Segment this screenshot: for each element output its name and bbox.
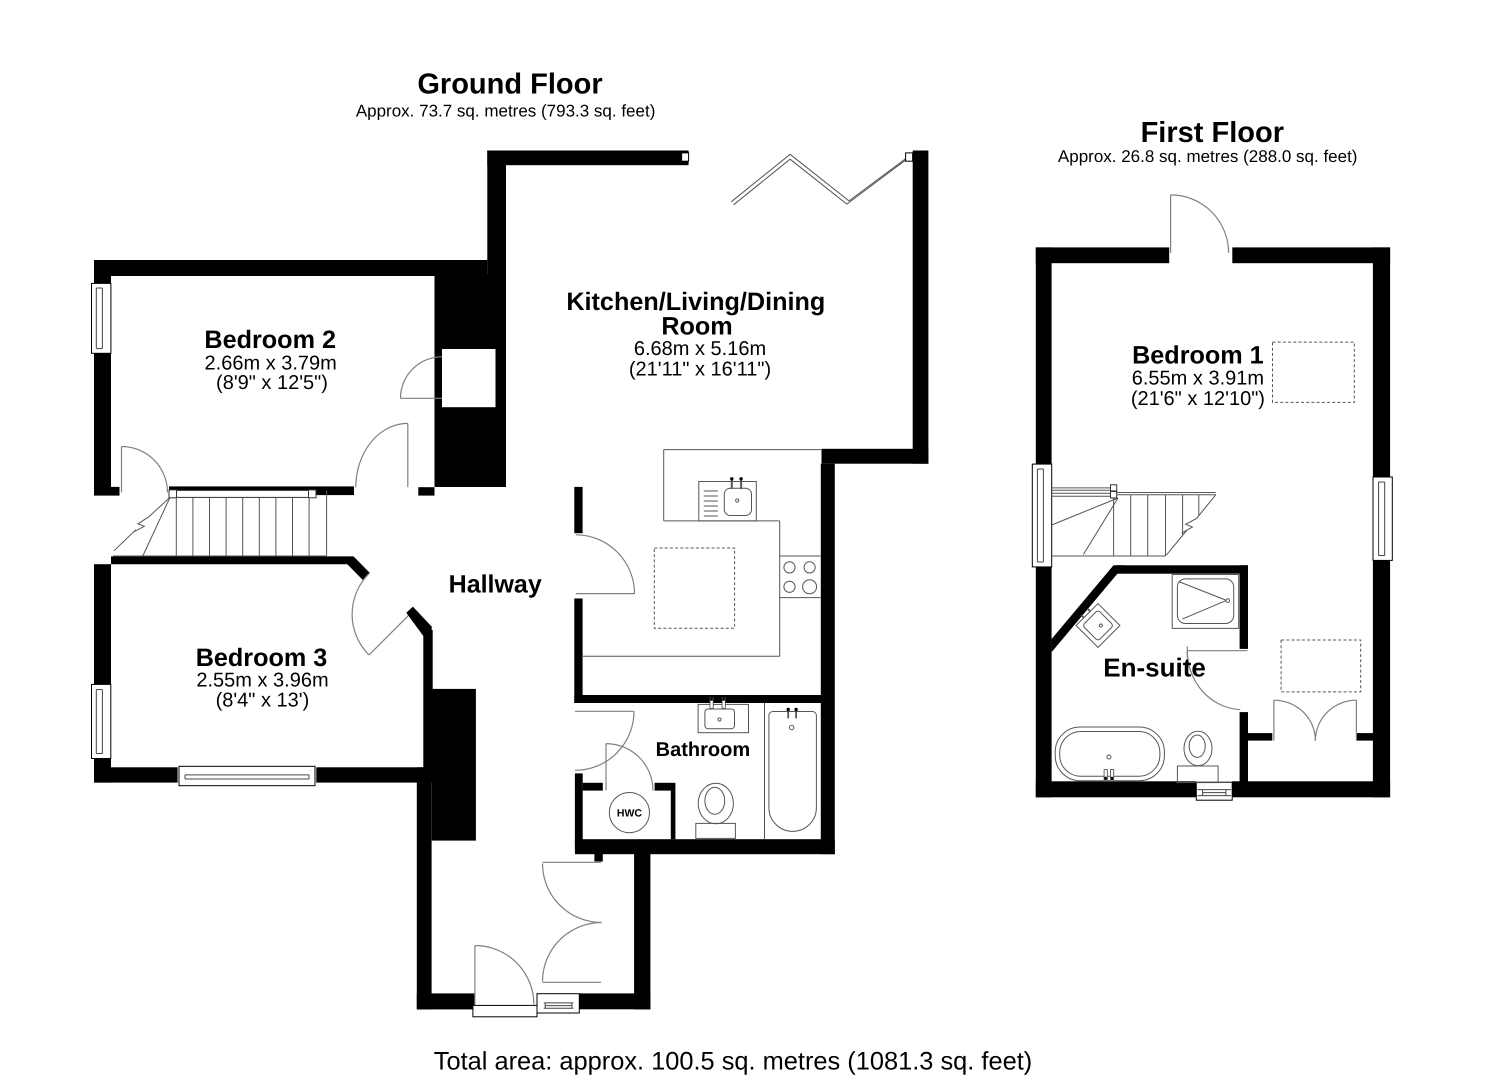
svg-text:Bedroom 1: Bedroom 1 xyxy=(1132,342,1264,370)
svg-text:Ground Floor: Ground Floor xyxy=(417,69,602,101)
svg-text:(8'9" x 12'5"): (8'9" x 12'5") xyxy=(216,372,328,394)
svg-text:Bedroom 3: Bedroom 3 xyxy=(196,644,328,672)
svg-text:6.55m x 3.91m: 6.55m x 3.91m xyxy=(1132,367,1264,389)
svg-text:(21'11" x 16'11"): (21'11" x 16'11") xyxy=(629,359,771,381)
svg-text:HWC: HWC xyxy=(617,808,642,820)
svg-text:En-suite: En-suite xyxy=(1103,652,1206,682)
svg-text:(8'4" x 13'): (8'4" x 13') xyxy=(216,689,310,711)
svg-text:2.55m x 3.96m: 2.55m x 3.96m xyxy=(196,669,328,691)
svg-text:Room: Room xyxy=(661,313,732,341)
svg-text:First Floor: First Floor xyxy=(1141,117,1284,149)
svg-text:(21'6" x 12'10"): (21'6" x 12'10") xyxy=(1131,388,1265,410)
svg-text:Approx. 73.7 sq. metres (793.3: Approx. 73.7 sq. metres (793.3 sq. feet) xyxy=(356,101,656,120)
svg-text:Bedroom 2: Bedroom 2 xyxy=(204,326,336,354)
svg-text:6.68m x 5.16m: 6.68m x 5.16m xyxy=(634,338,766,360)
svg-text:Bathroom: Bathroom xyxy=(656,739,750,761)
svg-text:Total area: approx. 100.5 sq.: Total area: approx. 100.5 sq. metres (10… xyxy=(434,1048,1032,1076)
svg-text:Hallway: Hallway xyxy=(449,571,542,599)
svg-text:Approx. 26.8 sq. metres (288.0: Approx. 26.8 sq. metres (288.0 sq. feet) xyxy=(1058,147,1358,166)
